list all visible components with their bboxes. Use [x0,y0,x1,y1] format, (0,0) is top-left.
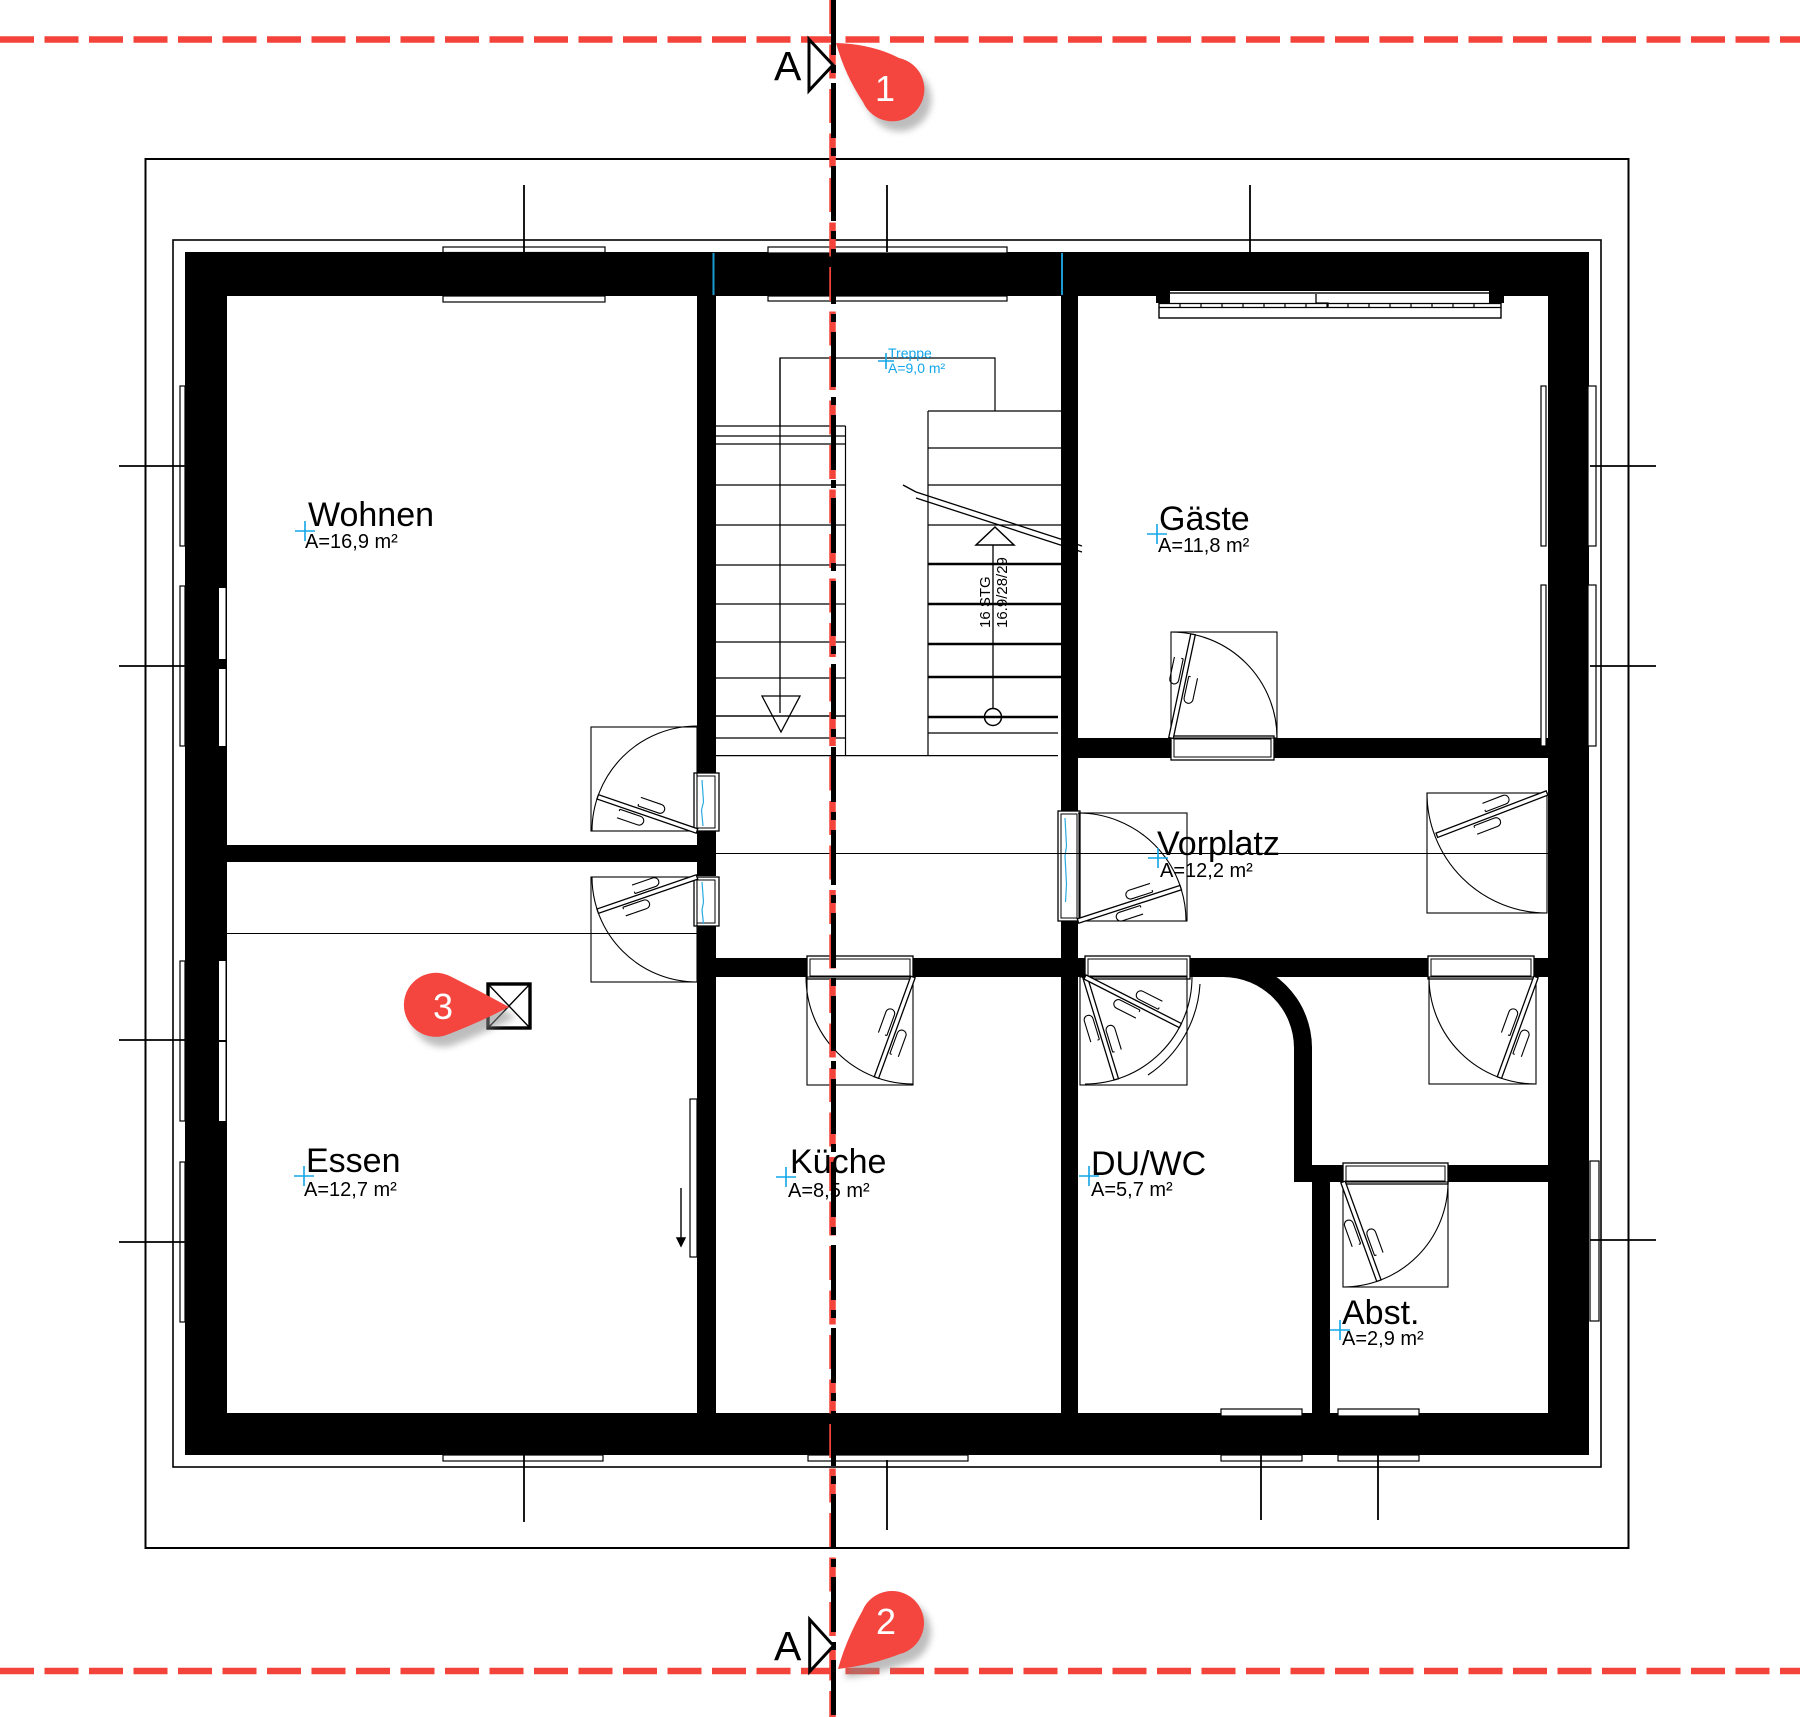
svg-text:A=5,7 m²: A=5,7 m² [1091,1179,1173,1201]
svg-text:A=11,8 m²: A=11,8 m² [1158,535,1250,557]
svg-text:16.9/28/29: 16.9/28/29 [994,557,1011,628]
svg-text:A=12,7 m²: A=12,7 m² [304,1179,397,1201]
svg-text:Vorplatz: Vorplatz [1157,825,1280,863]
svg-text:A=16,9 m²: A=16,9 m² [305,531,398,553]
svg-text:A: A [774,1623,802,1669]
svg-text:A=12,2 m²: A=12,2 m² [1160,860,1253,882]
svg-text:A: A [774,43,802,89]
svg-text:2: 2 [876,1601,896,1642]
svg-text:Gäste: Gäste [1159,500,1250,538]
svg-text:Abst.: Abst. [1342,1294,1419,1332]
svg-text:Wohnen: Wohnen [308,496,434,534]
svg-text:Essen: Essen [306,1142,401,1180]
svg-text:Küche: Küche [790,1143,886,1181]
svg-text:16 STG: 16 STG [977,576,994,628]
svg-text:DU/WC: DU/WC [1091,1145,1206,1183]
svg-text:A=2,9 m²: A=2,9 m² [1342,1328,1424,1350]
svg-text:A=8,5 m²: A=8,5 m² [788,1180,870,1202]
svg-text:1: 1 [875,68,895,109]
svg-text:A=9,0 m²: A=9,0 m² [888,360,946,376]
svg-text:3: 3 [433,986,453,1027]
svg-text:Treppe: Treppe [888,345,932,361]
